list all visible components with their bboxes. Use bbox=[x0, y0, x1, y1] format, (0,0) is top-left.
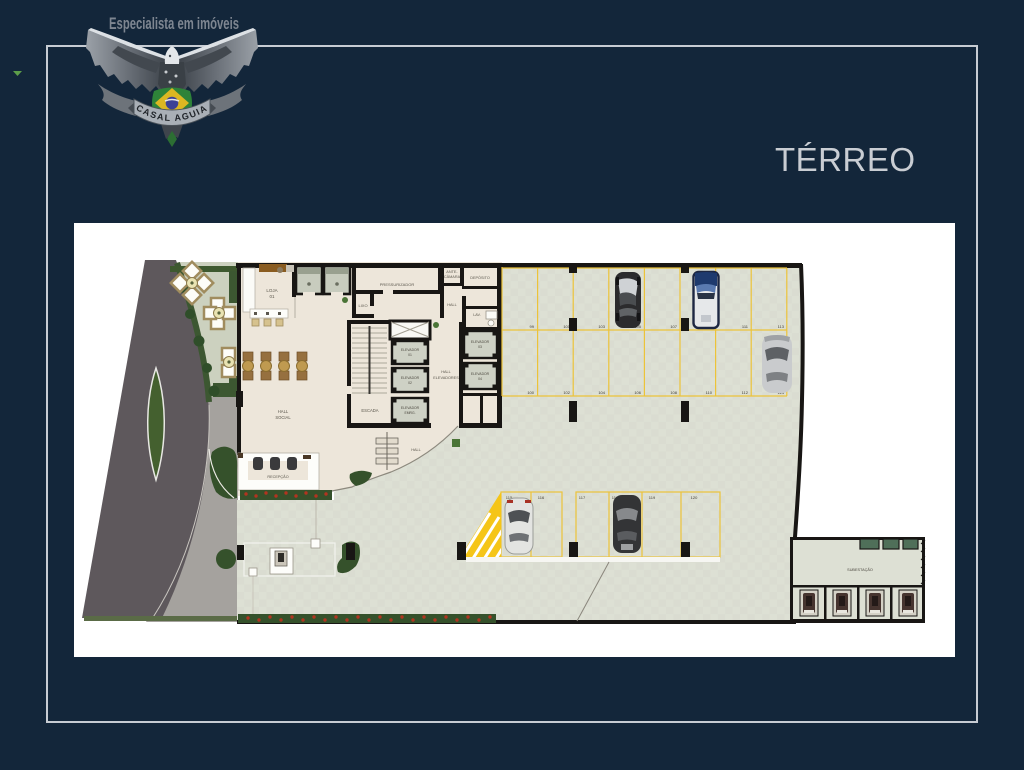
svg-text:ELEVADOR: ELEVADOR bbox=[401, 376, 420, 380]
svg-text:99: 99 bbox=[530, 324, 535, 329]
svg-text:01: 01 bbox=[269, 294, 275, 299]
svg-text:104: 104 bbox=[598, 390, 605, 395]
svg-text:116: 116 bbox=[538, 495, 545, 500]
svg-text:TÉRREO: TÉRREO bbox=[775, 141, 915, 178]
svg-text:CÂMARA: CÂMARA bbox=[444, 274, 461, 279]
svg-text:LOJA: LOJA bbox=[266, 288, 277, 293]
svg-text:117: 117 bbox=[579, 495, 586, 500]
svg-text:02: 02 bbox=[408, 381, 412, 385]
svg-text:LAV.: LAV. bbox=[473, 313, 481, 317]
svg-text:ELEVADORES: ELEVADORES bbox=[433, 376, 459, 380]
svg-text:113: 113 bbox=[778, 324, 785, 329]
svg-text:111: 111 bbox=[742, 324, 749, 329]
svg-text:106: 106 bbox=[634, 390, 641, 395]
svg-text:HALL: HALL bbox=[278, 409, 289, 414]
svg-text:102: 102 bbox=[563, 390, 570, 395]
svg-text:04: 04 bbox=[478, 377, 482, 381]
svg-text:107: 107 bbox=[670, 324, 677, 329]
svg-text:ELEVADOR: ELEVADOR bbox=[471, 372, 490, 376]
svg-text:03: 03 bbox=[478, 345, 482, 349]
svg-text:110: 110 bbox=[706, 390, 713, 395]
svg-text:112: 112 bbox=[742, 390, 749, 395]
svg-text:103: 103 bbox=[598, 324, 605, 329]
svg-text:RECEPÇÃO: RECEPÇÃO bbox=[267, 474, 288, 479]
svg-text:SUBESTAÇÃO: SUBESTAÇÃO bbox=[847, 567, 873, 572]
svg-text:Especialista em imóveis: Especialista em imóveis bbox=[109, 14, 239, 33]
svg-text:ELEVADOR: ELEVADOR bbox=[401, 348, 420, 352]
svg-text:01: 01 bbox=[408, 353, 412, 357]
svg-text:ANTE-: ANTE- bbox=[446, 270, 458, 274]
svg-text:LIXO: LIXO bbox=[358, 303, 367, 308]
svg-text:120: 120 bbox=[691, 495, 698, 500]
svg-text:100: 100 bbox=[527, 390, 534, 395]
svg-text:HALL: HALL bbox=[441, 370, 451, 374]
svg-text:SOCIAL: SOCIAL bbox=[275, 415, 291, 420]
svg-text:ELEVADOR: ELEVADOR bbox=[471, 340, 490, 344]
svg-text:119: 119 bbox=[649, 495, 656, 500]
svg-text:PRESSURIZADOR: PRESSURIZADOR bbox=[380, 282, 415, 287]
svg-text:EMRG.: EMRG. bbox=[404, 411, 415, 415]
svg-text:108: 108 bbox=[670, 390, 677, 395]
svg-text:HALL: HALL bbox=[447, 303, 457, 307]
svg-text:DEPÓSITO: DEPÓSITO bbox=[470, 275, 490, 280]
svg-text:ESCADA: ESCADA bbox=[361, 408, 378, 413]
svg-text:ELEVADOR: ELEVADOR bbox=[401, 406, 420, 410]
svg-text:HALL: HALL bbox=[411, 448, 421, 452]
